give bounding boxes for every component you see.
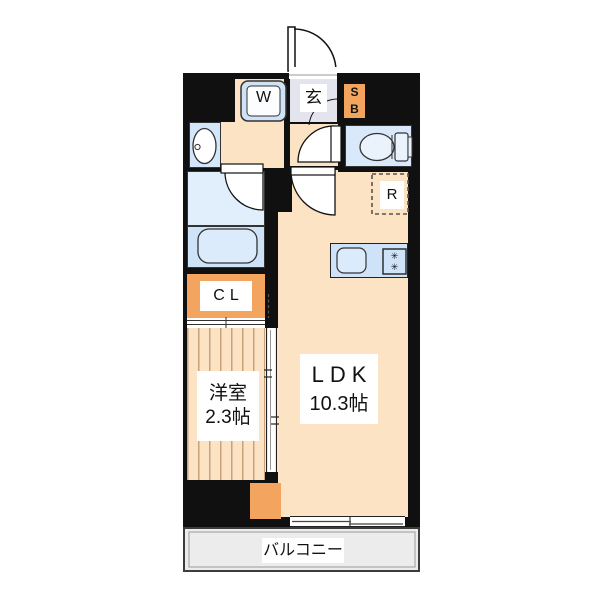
- shoe-box-label: S B: [342, 84, 367, 118]
- bathroom-door-icon: [221, 164, 263, 210]
- entrance-door-icon: [288, 27, 337, 79]
- washbasin-icon: [193, 129, 216, 164]
- partition-slider-lines: [264, 294, 279, 472]
- hall-door-icon: [298, 126, 341, 162]
- ldk-door-icon: [291, 167, 335, 215]
- kitchen-sink-icon: [337, 248, 366, 273]
- washer-label: W: [247, 89, 280, 107]
- balcony-label: バルコニー: [262, 538, 344, 563]
- stove-burners-label: ✳ ✳: [383, 249, 406, 274]
- ldk-label: LDK 10.3帖: [300, 354, 378, 424]
- floorplan-canvas: 玄 W S B R CL 洋室 2.3帖 LDK 10.3帖 バルコニー ✳ ✳: [0, 0, 600, 600]
- refrigerator-label: R: [380, 181, 404, 209]
- western-room-label: 洋室 2.3帖: [197, 371, 259, 441]
- closet-label: CL: [200, 281, 252, 311]
- balcony-window-lines: [292, 517, 403, 526]
- entrance-label: 玄: [300, 84, 327, 112]
- toilet-icon: [360, 133, 412, 161]
- bathtub-icon: [198, 229, 257, 263]
- closet-slider-lines: [187, 317, 265, 328]
